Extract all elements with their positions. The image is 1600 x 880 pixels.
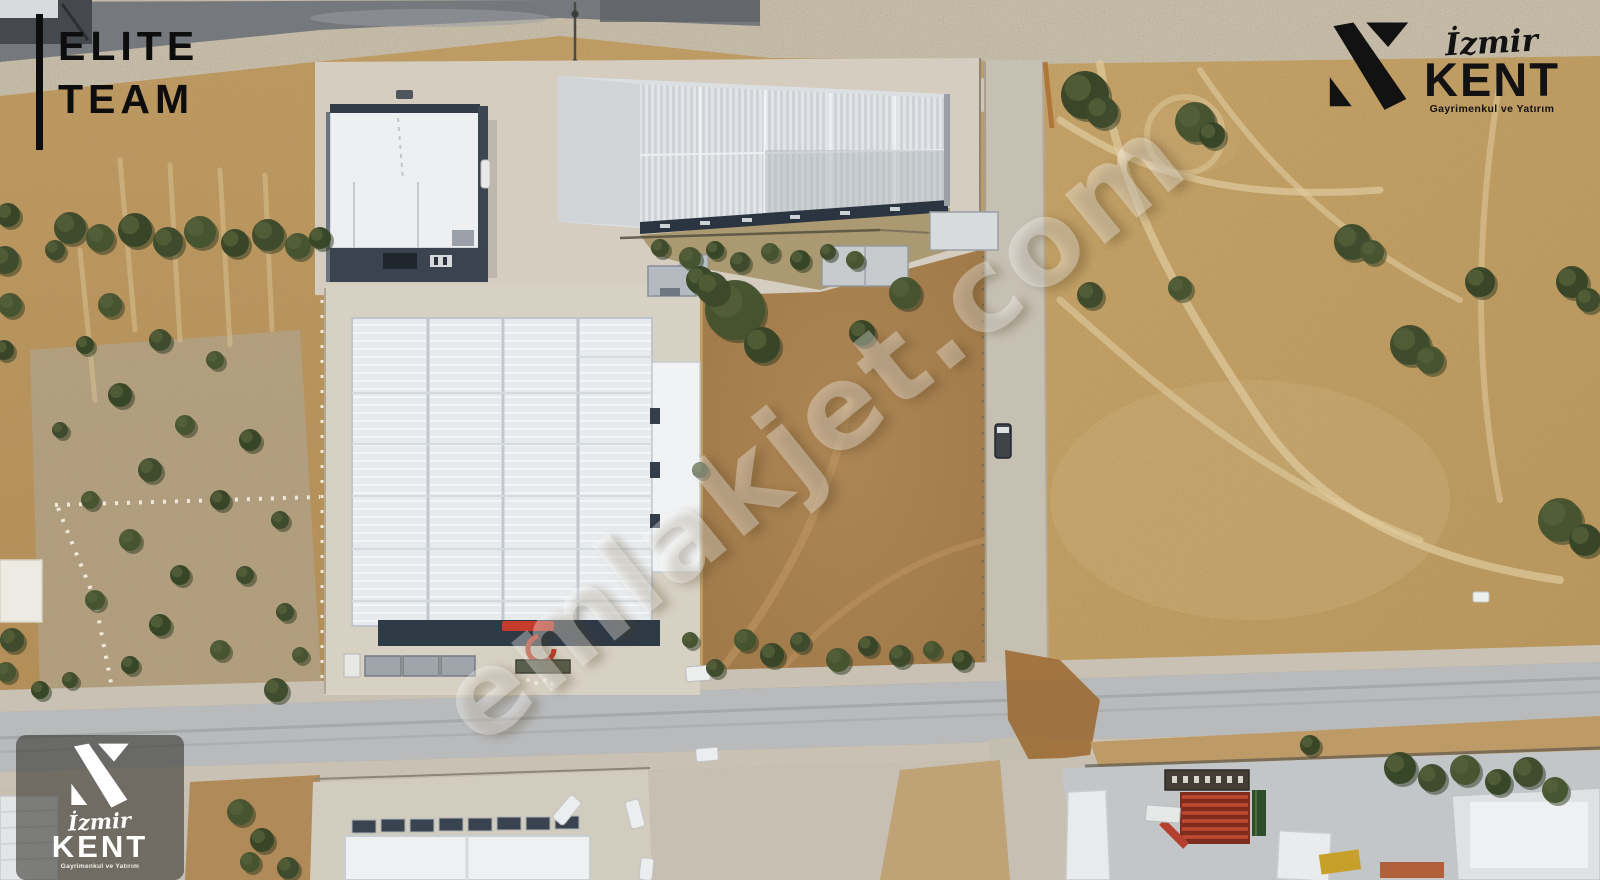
tree <box>1362 242 1375 255</box>
tree <box>2 630 15 643</box>
tree <box>1337 227 1357 247</box>
tree <box>1386 754 1404 772</box>
badge-name-label: KENT <box>52 832 148 862</box>
tree <box>82 492 92 502</box>
tree <box>1544 779 1558 793</box>
white-shed <box>930 212 998 250</box>
tree <box>287 235 301 249</box>
tree <box>207 352 217 362</box>
tree <box>732 254 743 265</box>
tree <box>736 631 748 643</box>
tree <box>237 567 247 577</box>
tree <box>53 423 62 432</box>
tree <box>186 218 204 236</box>
kent-badge-mark-icon <box>70 742 130 812</box>
kent-tagline-label: Gayrimenkul ve Yatırım <box>1430 103 1555 115</box>
kent-city-label: İzmir <box>1445 26 1539 61</box>
kent-name-label: KENT <box>1424 58 1560 102</box>
tree <box>762 244 772 254</box>
tree <box>155 229 172 246</box>
tree <box>1467 269 1484 286</box>
tree <box>693 463 702 472</box>
tree <box>1541 501 1565 525</box>
elite-team-line2: TEAM <box>58 73 199 126</box>
tree <box>88 226 103 241</box>
vertical-road <box>985 60 1048 700</box>
tree <box>707 660 717 670</box>
tree <box>747 330 767 350</box>
tree <box>100 295 113 308</box>
warehouse-a <box>326 90 497 282</box>
tree <box>1515 759 1532 776</box>
tree <box>1418 348 1433 363</box>
warehouse-c <box>344 266 700 686</box>
tree <box>762 645 775 658</box>
tree <box>63 673 72 682</box>
izmir-kent-logo: İzmir KENT Gayrimenkul ve Yatırım <box>1328 20 1560 116</box>
tree <box>1571 526 1589 544</box>
tree <box>242 854 253 865</box>
tree <box>122 657 132 667</box>
tree <box>121 531 133 543</box>
tree <box>172 567 183 578</box>
tree <box>229 801 243 815</box>
tree <box>891 647 903 659</box>
badge-tagline-label: Gayrimenkul ve Yatırım <box>61 863 139 870</box>
tree <box>254 221 272 239</box>
tree <box>121 216 140 235</box>
tree <box>707 242 717 252</box>
orange-container <box>1380 862 1444 878</box>
tree <box>110 385 123 398</box>
tree <box>1487 771 1501 785</box>
elite-team-text: ELITE TEAM <box>58 20 199 126</box>
aerial-photo: ELITE TEAM İzmir KENT Gayrimenkul ve Yat… <box>0 0 1600 880</box>
tree <box>792 634 803 645</box>
tree <box>792 252 803 263</box>
kent-logo-mark-icon <box>1328 20 1410 116</box>
tree <box>293 648 302 657</box>
tree <box>698 274 716 292</box>
elite-team-line1: ELITE <box>58 20 199 73</box>
tree <box>47 242 58 253</box>
tree <box>272 512 282 522</box>
tree <box>1079 284 1093 298</box>
tree <box>279 859 291 871</box>
tree <box>1065 75 1091 101</box>
elite-team-bar <box>36 14 43 150</box>
tree <box>212 492 223 503</box>
dark-van <box>995 424 1011 458</box>
tree <box>140 460 153 473</box>
aerial-scene <box>0 0 1600 880</box>
tree <box>954 652 965 663</box>
tree <box>1393 328 1415 350</box>
tree <box>681 249 693 261</box>
tree <box>252 830 265 843</box>
tree <box>891 279 909 297</box>
steel-stacks-green <box>1252 790 1266 836</box>
tree <box>266 680 279 693</box>
tree <box>851 322 865 336</box>
tree <box>223 231 238 246</box>
tree <box>0 295 13 308</box>
tree <box>1558 268 1576 286</box>
tree <box>277 604 287 614</box>
tree <box>924 642 934 652</box>
tree <box>151 331 163 343</box>
tree <box>1170 278 1183 291</box>
tree <box>241 431 253 443</box>
tree <box>56 214 74 232</box>
tree <box>77 337 87 347</box>
tree <box>1178 105 1200 127</box>
tree <box>683 633 692 642</box>
tree <box>652 240 662 250</box>
tree <box>1201 124 1215 138</box>
tree <box>212 642 223 653</box>
tree <box>1302 737 1313 748</box>
tree <box>1420 766 1435 781</box>
tree <box>828 650 841 663</box>
tree <box>177 417 188 428</box>
badge-city-label: İzmir <box>68 810 132 833</box>
tree <box>821 245 830 254</box>
izmir-kent-badge: İzmir KENT Gayrimenkul ve Yatırım <box>16 735 184 880</box>
tree <box>860 638 871 649</box>
red-canopy <box>502 621 554 631</box>
elite-team-logo: ELITE TEAM <box>36 14 199 150</box>
tree <box>1088 98 1106 116</box>
tree <box>32 682 42 692</box>
tree <box>311 229 323 241</box>
tree <box>847 252 857 262</box>
tree <box>151 616 163 628</box>
tree <box>1452 757 1469 774</box>
tree <box>87 592 98 603</box>
tree <box>1578 290 1591 303</box>
